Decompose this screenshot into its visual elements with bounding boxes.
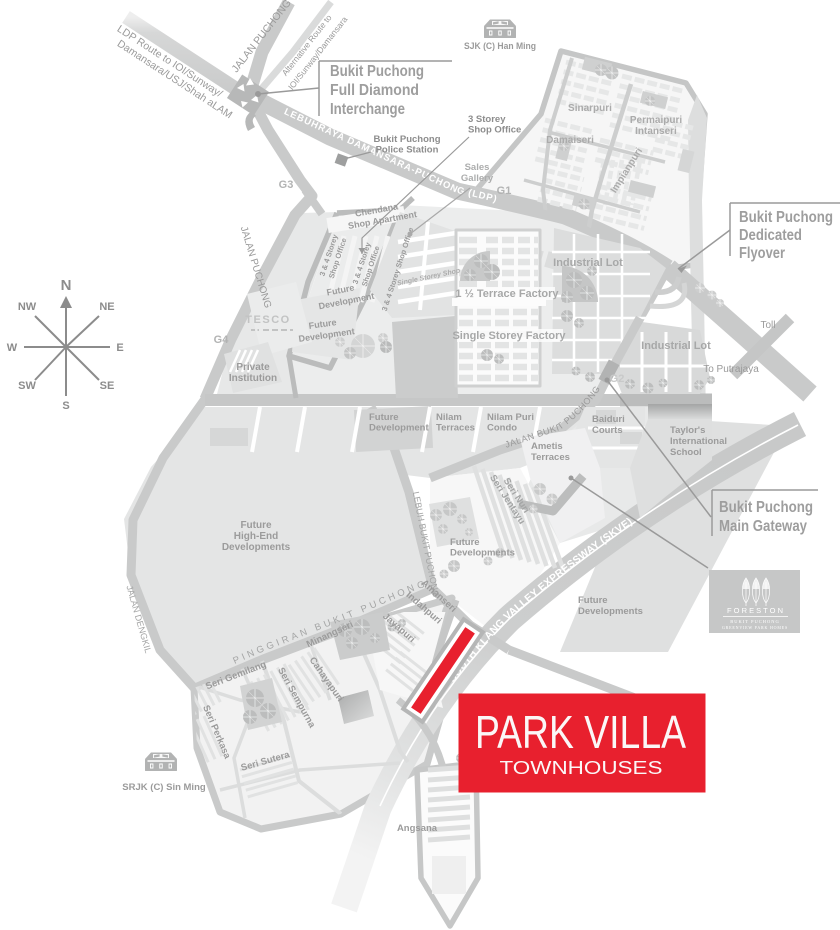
svg-text:Main Gateway: Main Gateway <box>719 518 807 535</box>
svg-text:Future: Future <box>369 412 399 423</box>
svg-text:International: International <box>670 436 727 447</box>
svg-text:Taylor's: Taylor's <box>670 425 705 436</box>
svg-text:3 Storey: 3 Storey <box>468 114 506 125</box>
svg-text:PARK VILLA: PARK VILLA <box>475 706 686 758</box>
svg-text:Interchange: Interchange <box>330 101 405 118</box>
svg-text:F O R E S T O N: F O R E S T O N <box>727 606 783 615</box>
svg-text:Bukit Puchong: Bukit Puchong <box>373 134 440 145</box>
svg-text:SE: SE <box>100 380 115 392</box>
svg-text:BUKIT PUCHONG: BUKIT PUCHONG <box>730 619 780 624</box>
svg-text:Full Diamond: Full Diamond <box>330 82 419 99</box>
svg-text:Police Station: Police Station <box>376 145 439 156</box>
svg-text:Developments: Developments <box>450 548 515 559</box>
svg-text:Terraces: Terraces <box>436 423 475 434</box>
svg-text:Baiduri: Baiduri <box>592 414 625 425</box>
svg-text:Sales: Sales <box>465 162 490 173</box>
svg-text:Damaiseri: Damaiseri <box>546 135 594 146</box>
svg-text:N: N <box>61 277 72 294</box>
svg-text:SRJK (C) Sin Ming: SRJK (C) Sin Ming <box>122 782 206 793</box>
svg-text:Single Storey Factory: Single Storey Factory <box>452 330 566 342</box>
svg-text:Future: Future <box>240 520 272 531</box>
svg-text:Permaipuri: Permaipuri <box>630 115 682 126</box>
svg-text:G3: G3 <box>279 179 294 191</box>
svg-text:Industrial Lot: Industrial Lot <box>553 257 623 269</box>
svg-text:Condo: Condo <box>487 423 517 434</box>
svg-text:To Putrajaya: To Putrajaya <box>703 364 759 375</box>
svg-text:Dedicated: Dedicated <box>739 227 802 244</box>
svg-text:Flyover: Flyover <box>739 245 785 262</box>
svg-text:Developments: Developments <box>222 542 291 553</box>
svg-text:E: E <box>116 342 123 354</box>
svg-text:Industrial Lot: Industrial Lot <box>641 340 711 352</box>
svg-text:Angsana: Angsana <box>397 823 438 834</box>
svg-text:S: S <box>62 400 69 412</box>
svg-text:Sinarpuri: Sinarpuri <box>568 103 612 114</box>
svg-text:W: W <box>7 342 18 354</box>
svg-text:Courts: Courts <box>592 425 623 436</box>
svg-text:GREENVIEW PARK HOMES: GREENVIEW PARK HOMES <box>722 625 788 630</box>
svg-text:Private: Private <box>236 362 270 373</box>
svg-text:G4: G4 <box>214 334 230 346</box>
svg-text:Terraces: Terraces <box>531 452 570 463</box>
svg-text:Future: Future <box>450 537 480 548</box>
svg-text:Ametis: Ametis <box>531 441 563 452</box>
svg-text:Developments: Developments <box>578 606 643 617</box>
svg-text:Gallery: Gallery <box>461 173 494 184</box>
svg-text:SJK (C) Han Ming: SJK (C) Han Ming <box>464 41 536 52</box>
svg-text:NE: NE <box>99 301 114 313</box>
svg-text:Nilam Puri: Nilam Puri <box>487 412 534 423</box>
svg-text:Development: Development <box>369 423 429 434</box>
svg-text:Toll: Toll <box>760 320 775 331</box>
svg-text:TOWNHOUSES: TOWNHOUSES <box>500 758 663 778</box>
svg-text:Bukit Puchong: Bukit Puchong <box>330 63 424 80</box>
svg-text:SW: SW <box>18 380 36 392</box>
svg-text:High-End: High-End <box>234 531 278 542</box>
svg-text:G1: G1 <box>497 185 512 197</box>
svg-text:Shop Office: Shop Office <box>468 125 521 136</box>
svg-text:Nilam: Nilam <box>436 412 462 423</box>
svg-text:Bukit Puchong: Bukit Puchong <box>719 499 813 516</box>
svg-text:School: School <box>670 447 702 458</box>
svg-text:NW: NW <box>18 301 37 313</box>
svg-text:1 ½ Terrace Factory: 1 ½ Terrace Factory <box>455 288 559 300</box>
svg-text:Future: Future <box>578 595 608 606</box>
svg-text:Bukit Puchong: Bukit Puchong <box>739 209 833 226</box>
svg-text:TESCO: TESCO <box>245 314 290 326</box>
svg-text:Institution: Institution <box>229 373 277 384</box>
svg-text:Intanseri: Intanseri <box>635 126 677 137</box>
svg-text:G2: G2 <box>610 373 625 385</box>
